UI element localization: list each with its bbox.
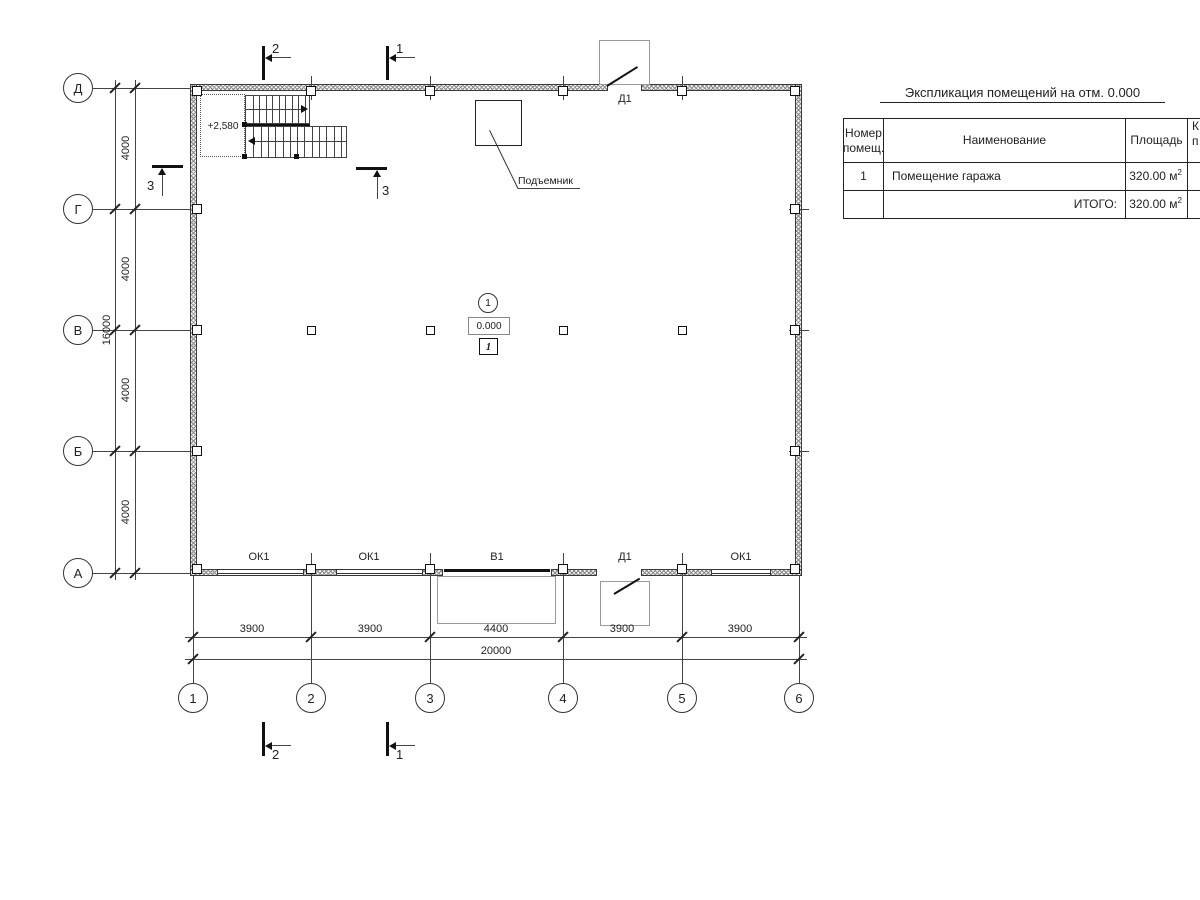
dimension-label-row: 4000 [120,493,132,531]
column-marker [425,564,435,574]
window-label: ОК1 [239,551,279,563]
column-marker [426,326,435,335]
dimension-label-col: 4400 [471,623,521,635]
section-arrow-icon [265,54,272,62]
column-marker [559,326,568,335]
section-label-3-left: 3 [147,178,154,193]
row-name: Помещение гаража [884,163,1126,191]
stair-tread [283,127,284,157]
grid-axis-row-3: Б [63,436,93,466]
window-label: ОК1 [349,551,389,563]
grid-axis-col-2: 3 [415,683,445,713]
section-arrow-icon [373,170,381,177]
window-ok1 [712,569,770,576]
column-marker [192,325,202,335]
grid-axis-col-1: 2 [296,683,326,713]
section-arrow-icon [158,168,166,175]
grid-axis-col-line [799,576,800,683]
grid-axis-row-line [93,88,190,89]
stair-tread [304,127,305,157]
row-number: 1 [844,163,884,191]
dimension-label-col: 3900 [345,623,395,635]
dimension-label-row: 4000 [120,371,132,409]
window-pane [337,573,422,574]
stair-post [242,154,247,159]
dimension-line-horizontal-segments [185,637,807,638]
stair-tread [312,127,313,157]
lift-label: Подъемник [518,175,580,187]
stair-walkline-lower [253,141,346,142]
total-empty [844,191,884,218]
header-cut: К п [1188,119,1200,163]
section-mark-2-bottom [262,722,265,756]
stair-arrow-down-icon [248,137,255,145]
grid-axis-row-line [93,573,190,574]
gate-label: В1 [483,551,511,563]
column-marker [306,86,316,96]
lift-outline [475,100,522,146]
stair-tread [297,127,298,157]
stair-tread [261,127,262,157]
stair-tread [290,127,291,157]
dimension-label-row: 4000 [120,250,132,288]
column-marker [306,564,316,574]
window-pane [218,573,303,574]
table-title: Экспликация помещений на отм. 0.000 [880,85,1165,103]
stair-tread [334,127,335,157]
section-label-2-bottom: 2 [272,747,279,762]
column-marker [790,446,800,456]
section-mark-1-top [386,46,389,80]
section-label-3-right: 3 [382,183,389,198]
column-marker [558,564,568,574]
stair-post [242,122,247,127]
column-marker [307,326,316,335]
dimension-label-col: 3900 [227,623,277,635]
door-label-bottom: Д1 [611,551,639,563]
total-area: 320.00 м2 [1126,191,1188,218]
room-tag-box: 1 [479,338,498,355]
grid-axis-row-2: В [63,315,93,345]
row-area: 320.00 м2 [1126,163,1188,191]
column-marker [677,564,687,574]
column-marker [192,204,202,214]
grid-axis-row-line [93,209,190,210]
column-marker [790,564,800,574]
column-marker [192,564,202,574]
stair-tread [268,127,269,157]
grid-axis-row-1: Г [63,194,93,224]
section-mark-3-right [356,167,387,170]
total-label: ИТОГО: [884,191,1126,218]
dimension-label-row-total: 16000 [101,308,113,352]
room-tag: 1 [486,341,492,353]
header-name: Наименование [884,119,1126,163]
lift-leader-underline [518,188,580,189]
column-marker [558,86,568,96]
grid-axis-col-line [193,576,194,683]
column-marker [677,86,687,96]
section-arrow-icon [389,54,396,62]
door-swing-top [599,40,650,85]
level-mark-box: 0.000 [468,317,510,335]
window-label: ОК1 [721,551,761,563]
column-marker [192,446,202,456]
wall-top-left-segment [190,84,608,91]
section-label-1-bottom: 1 [396,747,403,762]
stair-walkline-upper [245,109,303,110]
window-ok1 [337,569,422,576]
section-mark-3-left [152,165,183,168]
grid-axis-col-0: 1 [178,683,208,713]
level-value: 0.000 [476,321,501,332]
floor-plan-drawing: Д1 Д1 В1 +2,580 Подъемник 1 0.000 1 2 1 … [0,0,1200,900]
section-arrow-icon [389,742,396,750]
grid-axis-row-line [93,451,190,452]
dimension-label-row: 4000 [120,129,132,167]
grid-axis-row-0: Д [63,73,93,103]
window-pane [712,573,770,574]
section-mark-2-top [262,46,265,80]
column-marker [678,326,687,335]
grid-axis-col-4: 5 [667,683,697,713]
room-number: 1 [485,297,491,309]
column-marker [192,86,202,96]
dimension-label-col: 3900 [715,623,765,635]
column-marker [790,325,800,335]
column-marker [425,86,435,96]
wall-top-right-segment [641,84,802,91]
header-area: Площадь [1126,119,1188,163]
grid-axis-col-5: 6 [784,683,814,713]
dimension-line-horizontal-total [185,659,807,660]
stair-tread [275,127,276,157]
column-marker [790,204,800,214]
gate-leaf [444,569,550,572]
window-ok1 [218,569,303,576]
dimension-label-col: 3900 [597,623,647,635]
room-number-circle: 1 [478,293,498,313]
total-cut [1188,191,1200,218]
section-arrow-icon [265,742,272,750]
stair-tread [319,127,320,157]
row-cut [1188,163,1200,191]
gate-swing [437,576,556,624]
stair-elevation-label: +2,580 [202,121,244,132]
explication-table: Номер помещ. Наименование Площадь К п 1 … [843,118,1200,219]
section-label-2-top: 2 [272,41,279,56]
grid-axis-row-4: А [63,558,93,588]
section-mark-1-bottom [386,722,389,756]
section-label-1-top: 1 [396,41,403,56]
stair-tread [326,127,327,157]
grid-axis-col-3: 4 [548,683,578,713]
door-label-top: Д1 [611,93,639,105]
stair-post [294,154,299,159]
header-room-number: Номер помещ. [844,119,884,163]
dimension-label-col-total: 20000 [466,645,526,657]
stair-tread [341,127,342,157]
column-marker [790,86,800,96]
stair-arrow-up-icon [301,105,308,113]
